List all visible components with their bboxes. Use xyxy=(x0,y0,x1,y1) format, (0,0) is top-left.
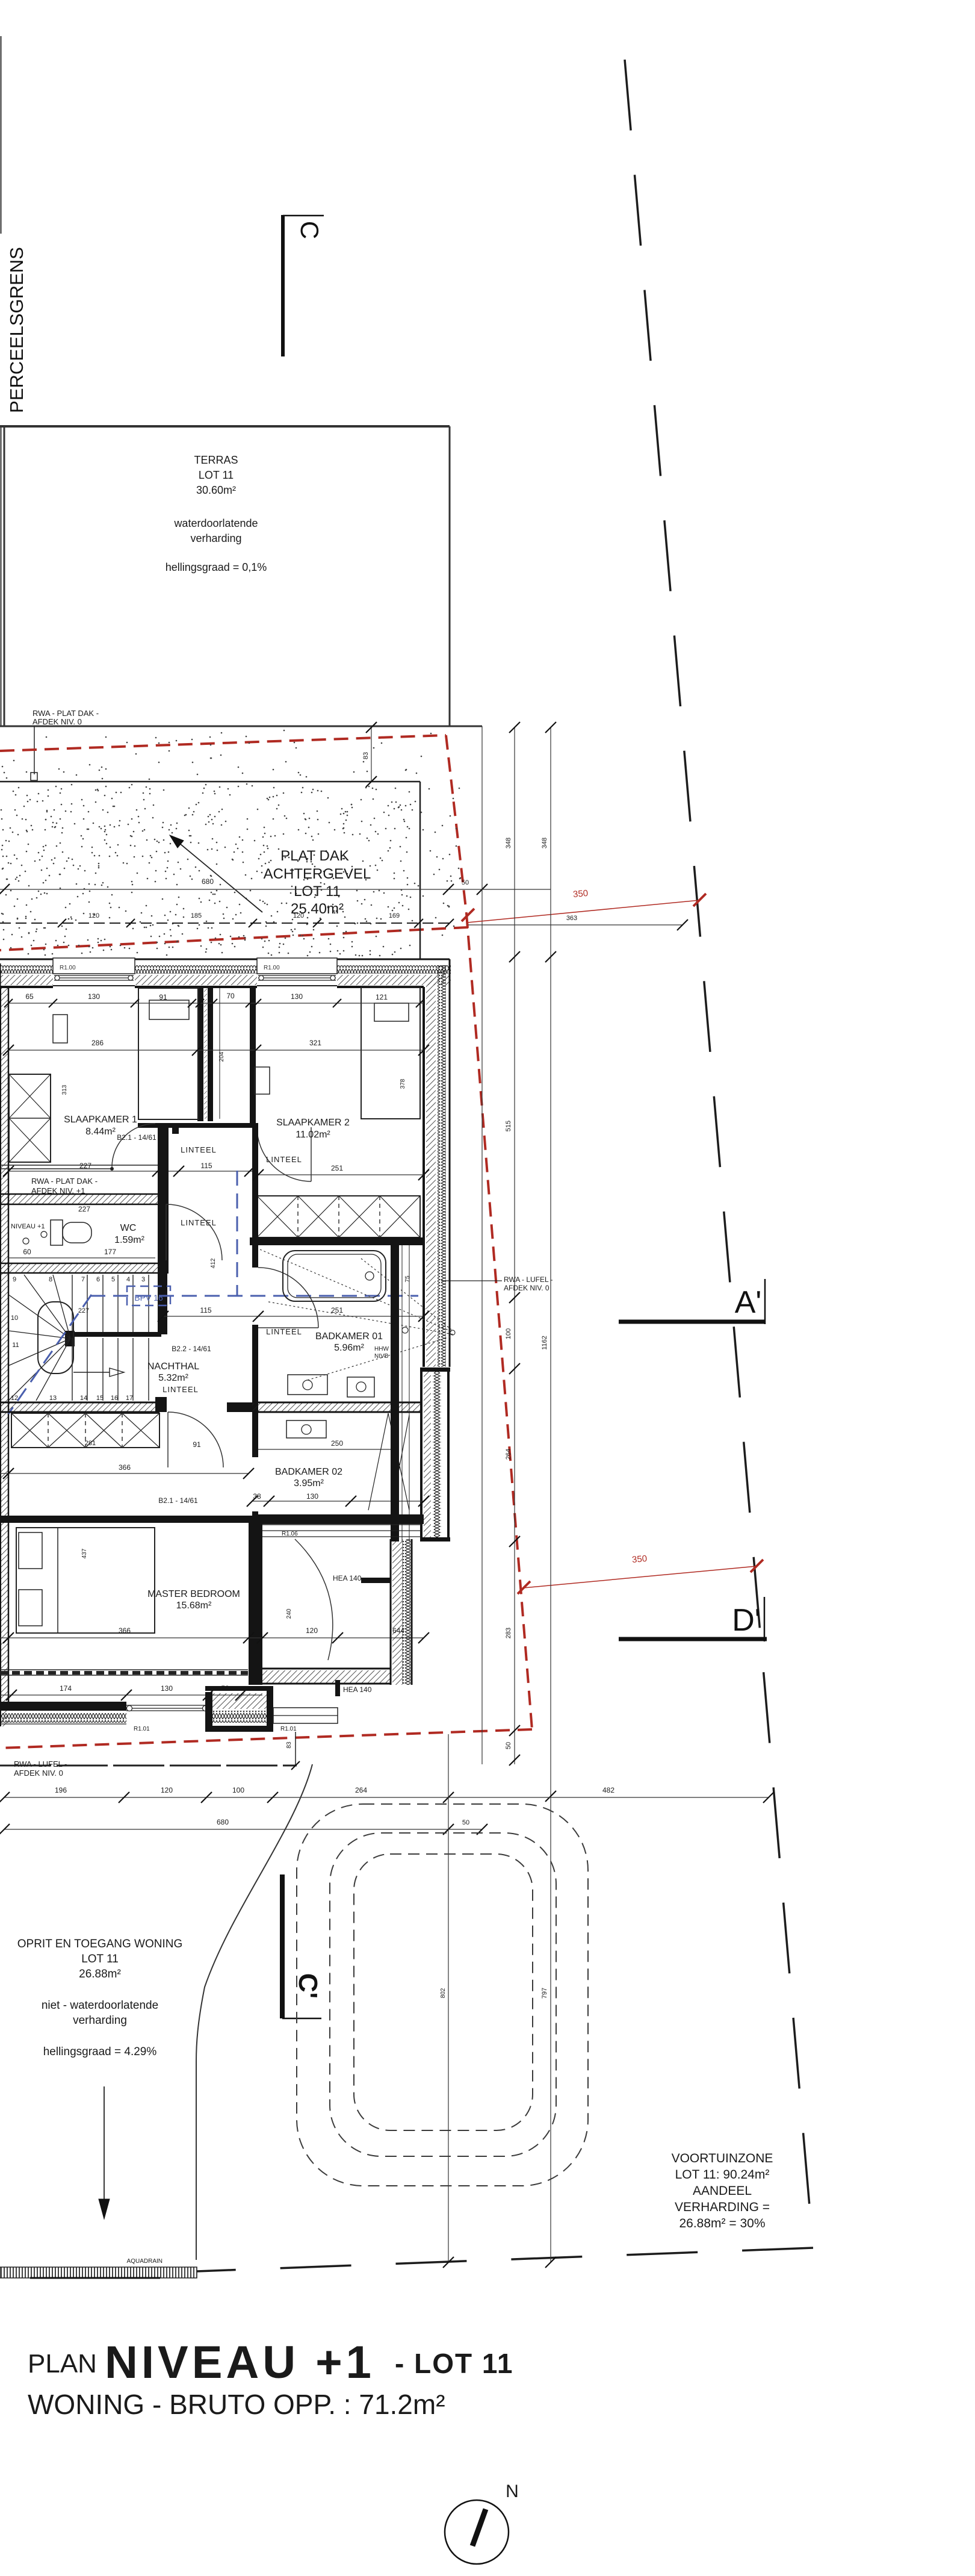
svg-text:verharding: verharding xyxy=(73,2014,127,2027)
svg-text:240: 240 xyxy=(286,1608,292,1619)
svg-text:100: 100 xyxy=(232,1786,244,1794)
svg-text:130: 130 xyxy=(291,992,303,1001)
svg-text:251: 251 xyxy=(331,1164,343,1172)
svg-text:WC: WC xyxy=(120,1223,137,1233)
svg-text:MASTER BEDROOM: MASTER BEDROOM xyxy=(147,1589,240,1599)
svg-text:BPV 16: BPV 16 xyxy=(134,1293,163,1302)
svg-text:8: 8 xyxy=(49,1276,52,1283)
svg-text:BADKAMER 02: BADKAMER 02 xyxy=(275,1467,342,1477)
svg-text:9: 9 xyxy=(13,1276,16,1283)
svg-text:26.88m²: 26.88m² xyxy=(79,1968,121,1980)
svg-text:321: 321 xyxy=(309,1039,321,1047)
svg-text:15.68m²: 15.68m² xyxy=(176,1601,212,1611)
svg-text:B2.1 - 14/61: B2.1 - 14/61 xyxy=(117,1133,156,1142)
svg-text:115: 115 xyxy=(200,1306,211,1314)
svg-text:16: 16 xyxy=(111,1395,118,1402)
svg-text:5: 5 xyxy=(111,1276,115,1283)
svg-text:AQUADRAIN: AQUADRAIN xyxy=(127,2258,162,2265)
svg-text:LINTEEL: LINTEEL xyxy=(266,1155,302,1164)
svg-text:251: 251 xyxy=(331,1306,343,1314)
svg-text:120: 120 xyxy=(293,912,304,919)
svg-text:227: 227 xyxy=(78,1205,90,1213)
svg-text:120: 120 xyxy=(306,1626,318,1635)
svg-text:LOT 11: LOT 11 xyxy=(81,1953,119,1965)
svg-text:AFDEK NIV. 0: AFDEK NIV. 0 xyxy=(32,717,82,726)
svg-text:120: 120 xyxy=(88,912,99,919)
svg-text:AFDEK NIV. 0: AFDEK NIV. 0 xyxy=(504,1284,549,1292)
svg-text:204: 204 xyxy=(218,1051,225,1062)
svg-text:130: 130 xyxy=(88,992,100,1001)
svg-text:TERRAS: TERRAS xyxy=(194,454,238,466)
svg-text:11: 11 xyxy=(12,1342,19,1349)
svg-text:LOT 11: 90.24m²: LOT 11: 90.24m² xyxy=(675,2168,770,2182)
svg-text:91: 91 xyxy=(193,1440,201,1449)
svg-text:348: 348 xyxy=(505,838,512,848)
svg-text:AFDEK NIV. 0: AFDEK NIV. 0 xyxy=(14,1769,63,1778)
svg-text:115: 115 xyxy=(200,1162,212,1170)
svg-text:378: 378 xyxy=(400,1078,406,1089)
svg-text:75: 75 xyxy=(404,1275,411,1283)
svg-text:3.95m²: 3.95m² xyxy=(294,1478,324,1489)
svg-text:250: 250 xyxy=(331,1439,343,1448)
svg-text:R1.00: R1.00 xyxy=(60,965,76,971)
svg-text:65: 65 xyxy=(25,992,34,1001)
svg-text:91: 91 xyxy=(159,993,167,1001)
svg-text:100: 100 xyxy=(505,1328,512,1339)
svg-text:NACHTHAL: NACHTHAL xyxy=(147,1361,199,1372)
svg-text:177: 177 xyxy=(104,1248,116,1256)
svg-text:83: 83 xyxy=(286,1741,292,1749)
svg-text:hellingsgraad = 0,1%: hellingsgraad = 0,1% xyxy=(166,561,267,573)
svg-text:17: 17 xyxy=(126,1395,133,1402)
svg-text:LINTEEL: LINTEEL xyxy=(162,1385,199,1394)
svg-text:38: 38 xyxy=(253,1492,261,1501)
svg-text:PLAN: PLAN xyxy=(28,2349,97,2378)
svg-text:30.60m²: 30.60m² xyxy=(196,484,236,496)
svg-text:N: N xyxy=(506,2481,519,2501)
svg-text:NIVB: NIVB xyxy=(374,1353,389,1360)
svg-text:10: 10 xyxy=(11,1314,18,1322)
svg-text:60: 60 xyxy=(23,1248,31,1256)
svg-text:482: 482 xyxy=(602,1786,614,1794)
svg-text:286: 286 xyxy=(91,1039,104,1047)
svg-text:RWA - PLAT DAK -: RWA - PLAT DAK - xyxy=(31,1177,97,1186)
svg-text:283: 283 xyxy=(505,1628,512,1638)
svg-text:130: 130 xyxy=(306,1492,318,1501)
svg-text:12: 12 xyxy=(11,1395,18,1402)
svg-text:RWA - LUFEL -: RWA - LUFEL - xyxy=(504,1275,553,1284)
svg-text:HHW: HHW xyxy=(374,1346,389,1352)
svg-text:4: 4 xyxy=(126,1276,130,1283)
svg-text:366: 366 xyxy=(119,1463,131,1472)
svg-text:120: 120 xyxy=(161,1786,173,1794)
svg-text:174: 174 xyxy=(60,1684,72,1693)
svg-text:437: 437 xyxy=(81,1548,88,1558)
svg-text:R1.01: R1.01 xyxy=(134,1726,150,1732)
svg-text:LOT 11: LOT 11 xyxy=(294,883,341,900)
svg-text:264: 264 xyxy=(355,1786,367,1794)
svg-text:HEA 140: HEA 140 xyxy=(343,1685,372,1694)
svg-text:7: 7 xyxy=(81,1276,85,1283)
svg-text:RWA - PLAT DAK -: RWA - PLAT DAK - xyxy=(32,709,99,718)
svg-text:227: 227 xyxy=(79,1162,91,1170)
svg-text:83: 83 xyxy=(362,752,370,759)
svg-text:26.88m² = 30%: 26.88m² = 30% xyxy=(679,2217,765,2230)
svg-text:313: 313 xyxy=(61,1084,68,1095)
svg-text:515: 515 xyxy=(505,1121,512,1131)
svg-text:A': A' xyxy=(735,1285,762,1320)
svg-text:C: C xyxy=(296,221,324,239)
svg-text:LOT 11: LOT 11 xyxy=(199,469,234,481)
svg-text:NIVEAU +1: NIVEAU +1 xyxy=(105,2337,375,2388)
svg-text:PERCEELSGRENS: PERCEELSGRENS xyxy=(6,247,27,413)
svg-text:SLAAPKAMER 2: SLAAPKAMER 2 xyxy=(276,1118,350,1128)
svg-text:niet - waterdoorlatende: niet - waterdoorlatende xyxy=(42,1999,158,2012)
svg-text:HEA 140: HEA 140 xyxy=(333,1574,362,1582)
svg-text:50: 50 xyxy=(462,1819,469,1826)
svg-text:15: 15 xyxy=(96,1395,104,1402)
svg-text:50: 50 xyxy=(462,879,469,886)
svg-text:281: 281 xyxy=(85,1440,96,1447)
svg-text:waterdoorlatende: waterdoorlatende xyxy=(173,517,258,529)
svg-text:1.59m²: 1.59m² xyxy=(114,1235,144,1245)
svg-text:WONING - BRUTO OPP. : 71.2m²: WONING - BRUTO OPP. : 71.2m² xyxy=(28,2389,445,2420)
svg-text:B2.1 - 14/61: B2.1 - 14/61 xyxy=(158,1496,198,1505)
svg-text:5.96m²: 5.96m² xyxy=(334,1343,364,1353)
svg-text:366: 366 xyxy=(119,1626,131,1635)
svg-text:VERHARDING =: VERHARDING = xyxy=(675,2200,770,2214)
svg-text:D': D' xyxy=(732,1603,760,1638)
svg-text:350: 350 xyxy=(631,1554,647,1565)
svg-text:412: 412 xyxy=(210,1258,217,1268)
svg-text:ACHTERGEVEL: ACHTERGEVEL xyxy=(264,866,371,882)
svg-text:hellingsgraad = 4.29%: hellingsgraad = 4.29% xyxy=(43,2046,157,2058)
svg-text:BADKAMER 01: BADKAMER 01 xyxy=(315,1331,383,1342)
svg-text:680: 680 xyxy=(217,1818,229,1826)
svg-text:363: 363 xyxy=(566,915,577,922)
svg-text:SLAAPKAMER 1: SLAAPKAMER 1 xyxy=(64,1115,137,1125)
svg-text:NIVEAU +1: NIVEAU +1 xyxy=(11,1223,45,1230)
svg-text:802: 802 xyxy=(440,1988,447,1998)
svg-text:196: 196 xyxy=(55,1786,67,1794)
svg-text:348: 348 xyxy=(541,838,548,848)
svg-text:OPRIT EN TOEGANG WONING: OPRIT EN TOEGANG WONING xyxy=(17,1938,182,1950)
svg-text:B2.2 - 14/61: B2.2 - 14/61 xyxy=(172,1345,211,1353)
svg-text:121: 121 xyxy=(376,993,388,1001)
svg-text:LINTEEL: LINTEEL xyxy=(181,1145,217,1154)
svg-text:- LOT 11: - LOT 11 xyxy=(395,2348,513,2379)
svg-text:3: 3 xyxy=(141,1276,145,1283)
svg-text:227: 227 xyxy=(78,1307,89,1314)
svg-text:50: 50 xyxy=(505,1742,512,1749)
svg-text:R1.00: R1.00 xyxy=(264,965,280,971)
svg-text:680: 680 xyxy=(202,877,214,886)
svg-text:350: 350 xyxy=(572,888,588,900)
svg-text:169: 169 xyxy=(389,912,400,919)
svg-text:6: 6 xyxy=(96,1276,100,1283)
svg-text:130: 130 xyxy=(161,1684,173,1693)
svg-text:11.02m²: 11.02m² xyxy=(296,1130,330,1140)
svg-text:797: 797 xyxy=(541,1988,548,1999)
svg-text:5.32m²: 5.32m² xyxy=(158,1373,188,1383)
svg-text:264: 264 xyxy=(505,1449,512,1460)
svg-text:C': C' xyxy=(293,1973,323,1999)
svg-text:RWA - LUFEL -: RWA - LUFEL - xyxy=(14,1759,67,1769)
svg-text:VOORTUINZONE: VOORTUINZONE xyxy=(672,2151,773,2165)
svg-text:185: 185 xyxy=(191,912,202,919)
svg-text:8.44m²: 8.44m² xyxy=(85,1127,116,1137)
svg-text:LINTEEL: LINTEEL xyxy=(181,1218,217,1227)
svg-text:1162: 1162 xyxy=(541,1336,548,1350)
svg-text:R1.06: R1.06 xyxy=(282,1531,298,1537)
svg-text:LINTEEL: LINTEEL xyxy=(266,1327,302,1336)
svg-text:14: 14 xyxy=(80,1395,87,1402)
svg-text:70: 70 xyxy=(226,992,235,1000)
svg-text:PLAT DAK: PLAT DAK xyxy=(280,848,349,864)
svg-text:13: 13 xyxy=(49,1395,57,1402)
svg-text:AANDEEL: AANDEEL xyxy=(693,2184,752,2198)
svg-text:R1.01: R1.01 xyxy=(280,1726,297,1732)
svg-text:verharding: verharding xyxy=(190,532,241,544)
